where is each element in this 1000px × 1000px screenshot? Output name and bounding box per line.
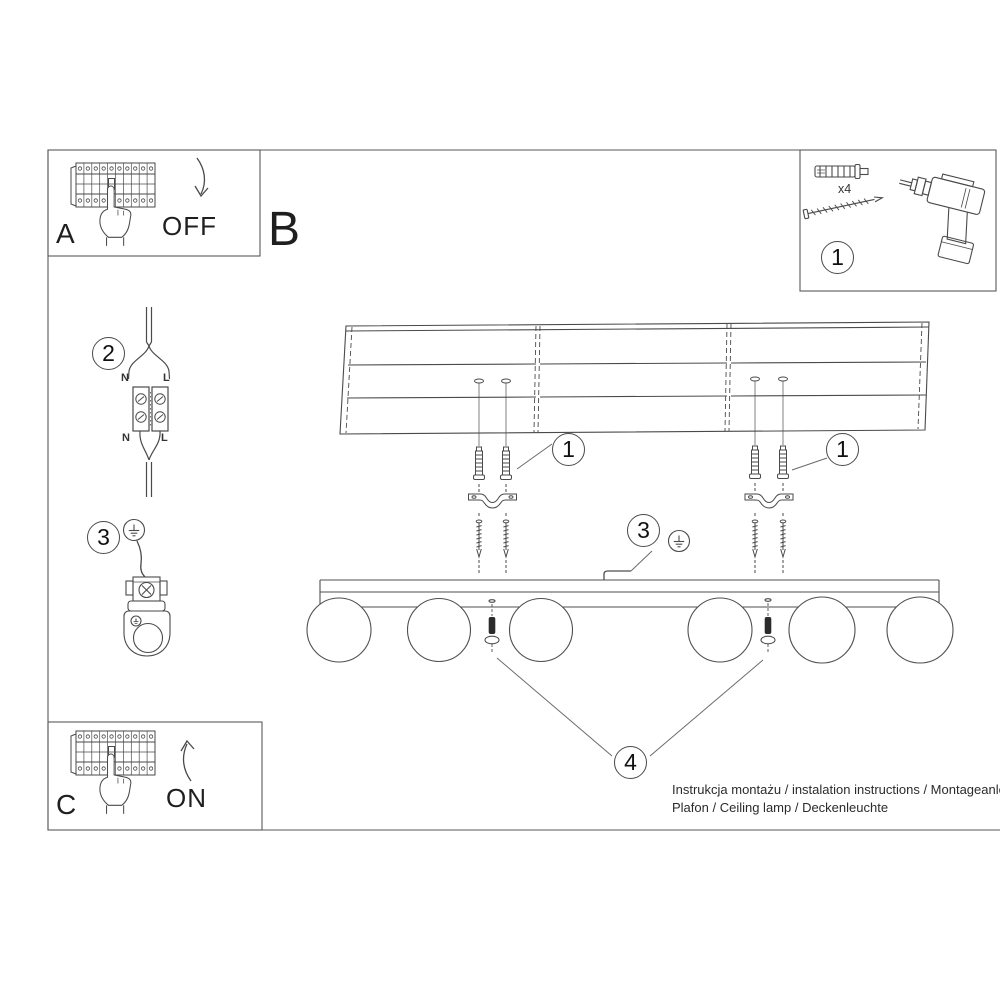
panel-c-label: C: [56, 789, 76, 821]
step-1-left-callout: 1: [552, 433, 585, 466]
step-1-right-callout: 1: [826, 433, 859, 466]
ceiling-lamp-illustration: [307, 571, 953, 663]
step-4-number: 4: [624, 749, 637, 776]
page-frame: [48, 150, 1000, 830]
ceiling-illustration: [340, 322, 929, 434]
step-1-parts-number: 1: [831, 244, 844, 271]
drill-icon: [884, 164, 988, 264]
panel-c-action: ON: [166, 783, 207, 814]
step-3-number: 3: [97, 524, 110, 551]
anchor-assembly-right: [745, 381, 793, 574]
step-3-lamp-callout: 3: [627, 514, 660, 547]
step-2-number: 2: [102, 340, 115, 367]
step-1-left-number: 1: [562, 436, 575, 463]
step-3-lamp-number: 3: [637, 517, 650, 544]
step-2-callout: 2: [92, 337, 125, 370]
footer-text: Instrukcja montażu / instalation instruc…: [672, 781, 1000, 817]
wiring-illustration: [129, 307, 170, 497]
panel-a-label: A: [56, 218, 75, 250]
panel-b-label: B: [268, 202, 300, 257]
ground-clamp-illustration: [124, 520, 171, 657]
wall-plug-icon: [815, 165, 868, 179]
diagram-line-art: [0, 0, 1000, 1000]
screw-icon: [803, 193, 883, 218]
arrow-up-icon: [181, 741, 194, 781]
wire-label-l-bottom: L: [161, 432, 168, 444]
footer-line-1: Instrukcja montażu / instalation instruc…: [672, 781, 1000, 799]
arrow-down-icon: [195, 158, 208, 196]
step-1-parts-callout: 1: [821, 241, 854, 274]
panel-a-action: OFF: [162, 211, 217, 242]
instruction-sheet: A OFF B C ON N L N L x4 2 3 1 1 1 3 4 In…: [0, 0, 1000, 1000]
step-1-right-number: 1: [836, 436, 849, 463]
parts-quantity: x4: [838, 182, 851, 196]
step-3-callout: 3: [87, 521, 120, 554]
anchor-assembly-left: [469, 383, 517, 574]
wire-label-n-top: N: [121, 372, 129, 384]
footer-line-2: Plafon / Ceiling lamp / Deckenleuchte: [672, 799, 1000, 817]
wire-label-n-bottom: N: [122, 432, 130, 444]
step-4-callout: 4: [614, 746, 647, 779]
callout-leaders-step4: [497, 658, 763, 756]
wire-label-l-top: L: [163, 372, 170, 384]
